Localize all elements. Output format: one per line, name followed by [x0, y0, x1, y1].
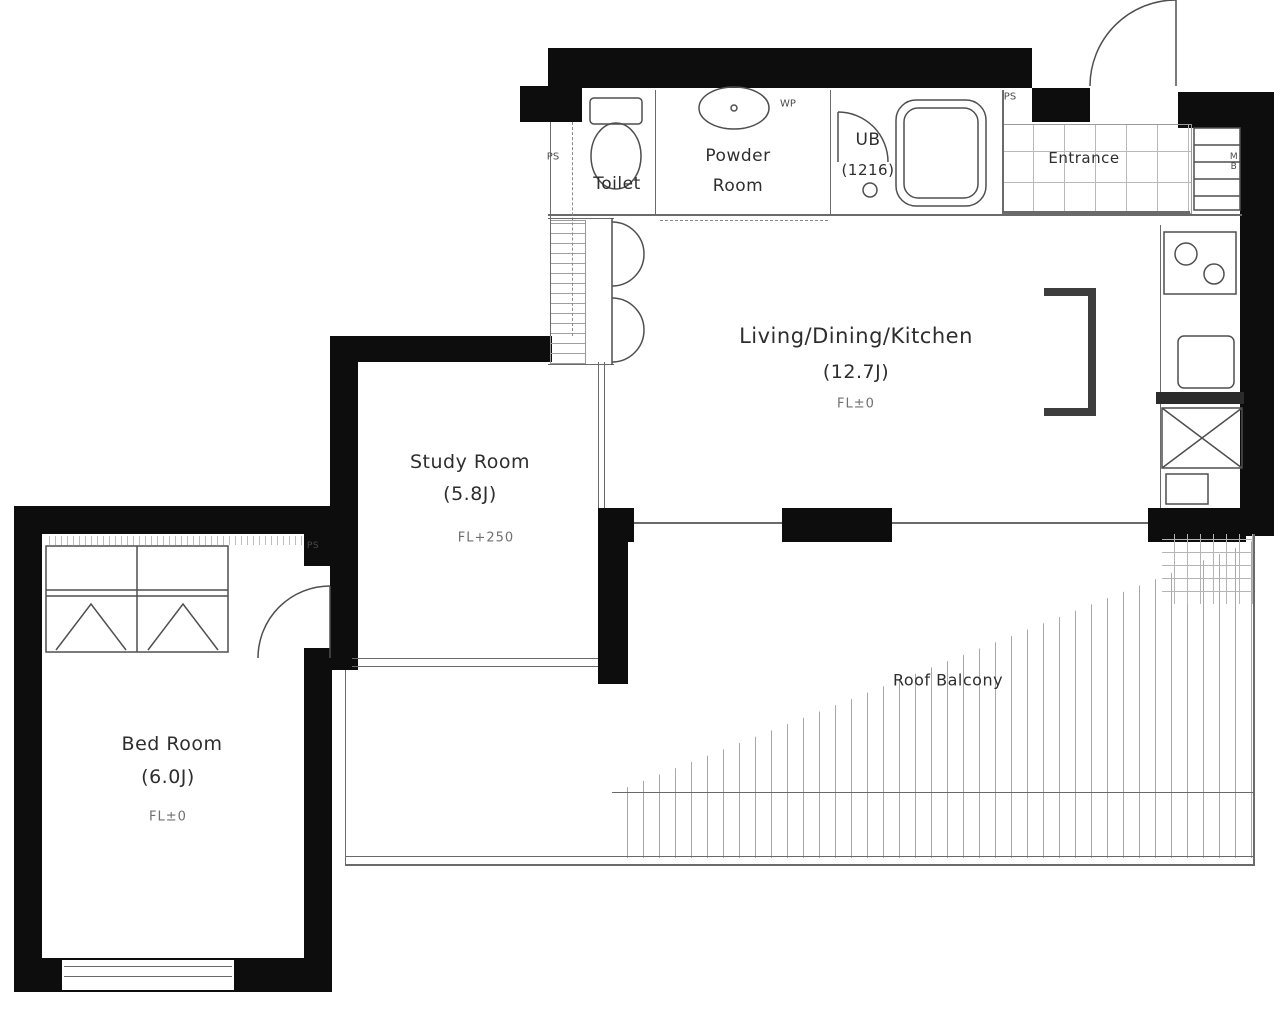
powder-room-label-2: Room	[713, 176, 763, 196]
bed-room-floor-level: FL±0	[149, 810, 187, 825]
bath-drain	[863, 183, 877, 197]
bedroom-door-arc	[258, 586, 330, 658]
shaft-label-ps-entrance: PS	[1004, 92, 1016, 103]
ldk-label: Living/Dining/Kitchen	[739, 324, 973, 348]
shaft-label-ps-toilet: PS	[547, 152, 559, 163]
unit-bath-size: (1216)	[842, 161, 895, 179]
kitchen-sink	[1178, 336, 1234, 388]
powder-room-label-1: Powder	[705, 146, 770, 166]
entrance-label: Entrance	[1048, 149, 1119, 167]
unit-bath-label: UB	[855, 130, 880, 150]
hall-closet-door-bottom-arc	[612, 298, 644, 362]
bathtub-inner	[904, 108, 978, 198]
bed-room-size: (6.0J)	[141, 766, 195, 788]
study-room-label: Study Room	[410, 451, 530, 473]
stove-burner-1	[1175, 243, 1197, 265]
bed-room-label: Bed Room	[122, 733, 223, 755]
kitchen-cabinet	[1166, 474, 1208, 504]
washbasin	[699, 87, 769, 129]
shaft-label-wp: WP	[780, 99, 796, 110]
study-room-size: (5.8J)	[443, 483, 497, 505]
counter-table	[1044, 292, 1092, 412]
stove-burner-2	[1204, 264, 1224, 284]
bathtub	[896, 100, 986, 206]
roof-balcony-label: Roof Balcony	[893, 671, 1003, 690]
hall-closet-door-top-arc	[612, 222, 644, 286]
entrance-door-arc	[1090, 0, 1176, 86]
closet-folding-door-2	[148, 604, 218, 650]
washbasin-drain	[731, 105, 737, 111]
ldk-size: (12.7J)	[823, 361, 889, 383]
floor-plan: PS Toilet WP Powder Room UB (1216) PS En…	[0, 0, 1280, 1013]
counter-divider	[1156, 392, 1244, 404]
ldk-floor-level: FL±0	[837, 397, 875, 412]
stove	[1164, 232, 1236, 294]
refrigerator-x	[1162, 408, 1242, 468]
shaft-label-ps-bedroom: PS	[307, 541, 319, 551]
shaft-label-mb: MB	[1229, 152, 1240, 172]
closet-folding-door-1	[56, 604, 126, 650]
study-room-floor-level: FL+250	[458, 531, 514, 546]
toilet-tank	[590, 98, 642, 124]
toilet-label: Toilet	[593, 174, 640, 194]
